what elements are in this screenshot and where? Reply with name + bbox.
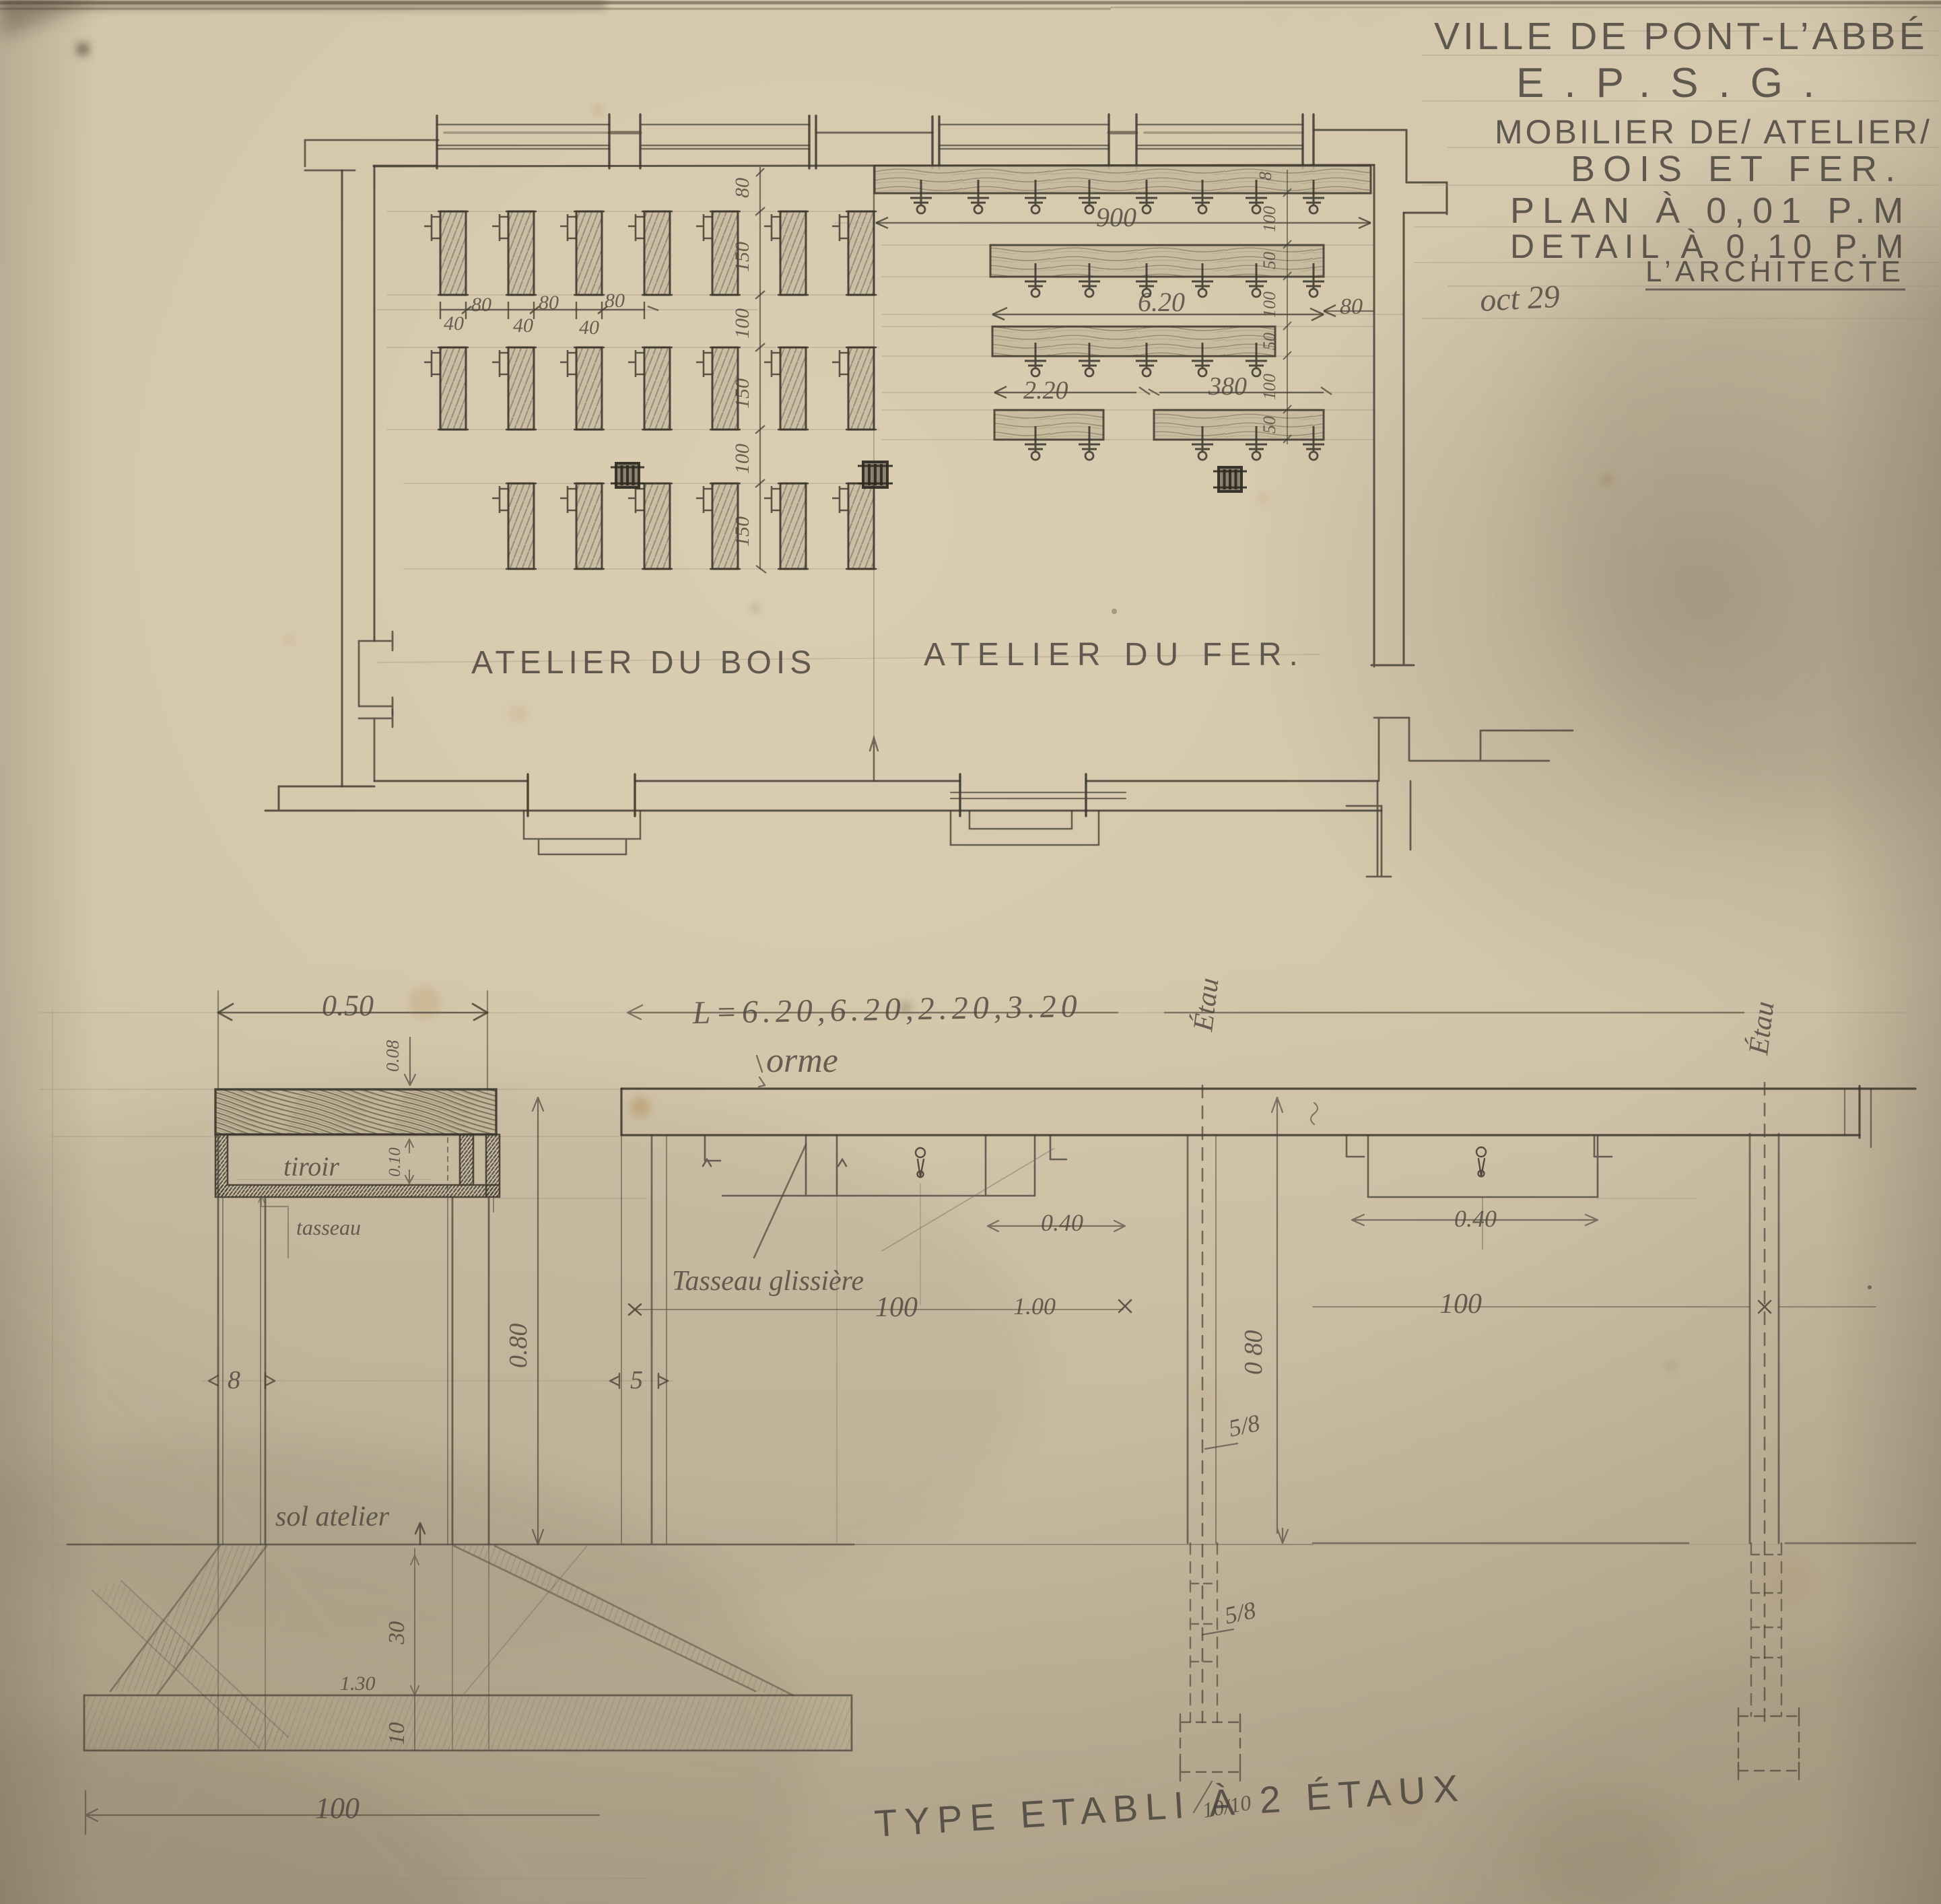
svg-text:380: 380 [1208,372,1247,401]
svg-text:tiroir: tiroir [283,1151,339,1182]
svg-text:150: 150 [731,242,753,272]
svg-text:1.00: 1.00 [1013,1293,1056,1320]
svg-text:100: 100 [1439,1289,1482,1320]
svg-text:1.30: 1.30 [340,1672,376,1695]
svg-text:80: 80 [539,292,559,314]
svg-text:L=6.20,6.20,2.20,3.20: L=6.20,6.20,2.20,3.20 [691,988,1082,1031]
svg-text:8: 8 [1256,172,1275,180]
svg-text:80: 80 [1340,294,1363,319]
svg-text:40: 40 [579,316,599,339]
svg-text:tasseau: tasseau [296,1215,361,1239]
svg-text:0.40: 0.40 [1041,1209,1083,1236]
svg-text:100: 100 [1260,374,1279,400]
svg-text:ATELIER DU FER.: ATELIER DU FER. [924,637,1305,673]
svg-text:oct 29: oct 29 [1479,279,1561,318]
svg-text:100: 100 [315,1792,360,1825]
svg-text:0.08: 0.08 [382,1040,403,1072]
svg-text:40: 40 [513,314,533,337]
svg-text:L’ARCHITECTE: L’ARCHITECTE [1645,255,1905,288]
svg-text:0.10: 0.10 [386,1147,404,1177]
svg-text:100: 100 [1260,206,1279,232]
svg-text:50: 50 [1260,416,1279,434]
svg-text:900: 900 [1096,202,1136,232]
svg-text:80: 80 [731,178,753,198]
svg-text:40: 40 [444,312,464,335]
svg-text:100: 100 [875,1292,918,1323]
svg-text:10: 10 [384,1722,409,1745]
svg-text:150: 150 [731,378,753,409]
svg-text:Tasseau glissière: Tasseau glissière [672,1266,864,1297]
svg-text:80: 80 [471,294,491,316]
svg-text:VILLE DE PONT-L’ABBÉ: VILLE DE PONT-L’ABBÉ [1434,15,1928,58]
svg-text:100: 100 [731,308,753,339]
svg-text:100: 100 [1260,292,1279,318]
svg-text:E.P.S.G.: E.P.S.G. [1516,60,1835,106]
svg-text:8: 8 [228,1366,240,1394]
svg-text:0 80: 0 80 [1239,1330,1268,1375]
svg-text:100: 100 [731,444,753,474]
svg-text:sol atelier: sol atelier [275,1501,390,1532]
svg-text:PLAN À 0,01 P.M: PLAN À 0,01 P.M [1510,191,1911,231]
svg-text:0.50: 0.50 [322,989,374,1022]
svg-text:orme: orme [766,1042,838,1080]
svg-text:150: 150 [731,516,753,547]
svg-text:Étau: Étau [1742,1000,1780,1057]
svg-text:6.20: 6.20 [1138,287,1185,317]
svg-text:50: 50 [1260,333,1279,350]
svg-text:ATELIER DU BOIS: ATELIER DU BOIS [471,645,816,681]
svg-text:50: 50 [1260,252,1279,269]
svg-text:5: 5 [630,1366,643,1394]
svg-text:2.20: 2.20 [1023,376,1068,405]
svg-text:MOBILIER DE/ ATELIER/: MOBILIER DE/ ATELIER/ [1495,113,1932,151]
svg-text:BOIS ET FER.: BOIS ET FER. [1571,149,1903,189]
svg-text:0.80: 0.80 [504,1324,533,1369]
svg-text:Étau: Étau [1187,976,1225,1033]
svg-text:0.40: 0.40 [1454,1205,1497,1232]
svg-text:80: 80 [605,290,625,312]
svg-text:30: 30 [384,1621,409,1645]
